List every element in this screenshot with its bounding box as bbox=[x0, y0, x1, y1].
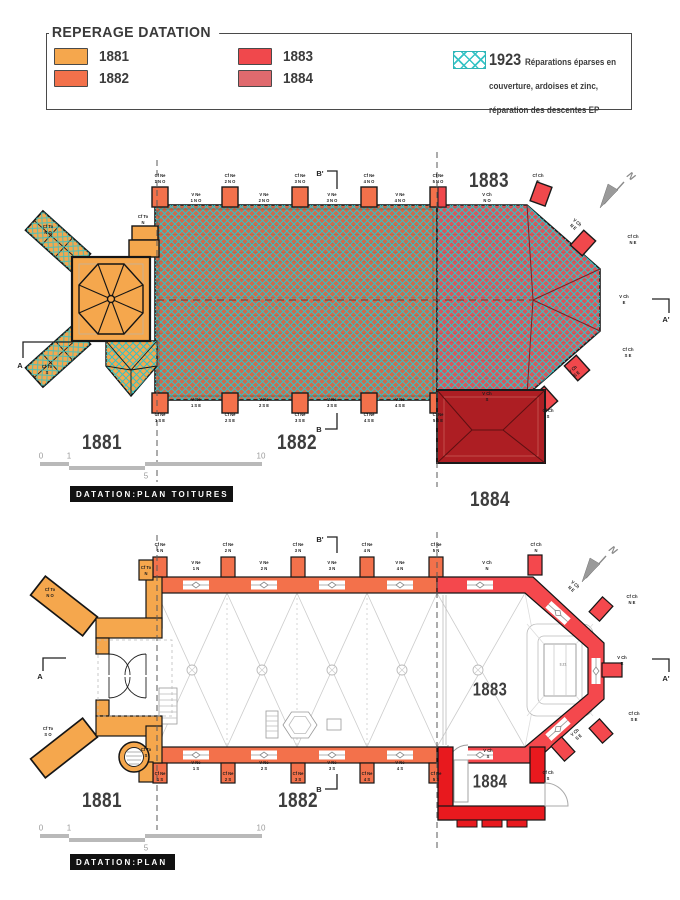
floor-zone-1881: 1881 bbox=[82, 789, 122, 813]
floor-plan-title: DATATION:PLAN bbox=[76, 858, 167, 867]
north-arrow-floor: N bbox=[582, 544, 619, 582]
roof-porch-2 bbox=[129, 240, 159, 257]
roof-chimney-split-top bbox=[438, 187, 446, 207]
section-a: A bbox=[37, 672, 43, 681]
floor-sacristy-door bbox=[545, 783, 568, 806]
scale-1: 1 bbox=[67, 452, 71, 461]
floor-plan: N A A' B' B bbox=[31, 532, 670, 850]
section-b-prime: B' bbox=[316, 535, 323, 544]
scale-10: 10 bbox=[257, 452, 266, 461]
roof-tower-1881 bbox=[26, 211, 159, 396]
scale-bar-roof bbox=[40, 462, 262, 470]
floor-tower-walls-1881 bbox=[31, 560, 162, 782]
roof-sacristy-1884 bbox=[437, 390, 545, 463]
section-b: B bbox=[316, 425, 322, 434]
north-label: N bbox=[606, 544, 619, 558]
section-a-prime: A' bbox=[662, 315, 669, 324]
floor-sacristy-cupboard bbox=[454, 760, 468, 802]
scale-5: 5 bbox=[144, 844, 148, 853]
scale-5: 5 bbox=[144, 472, 148, 481]
floor-zone-1883: 1883 bbox=[473, 680, 507, 701]
roof-zone-1881: 1881 bbox=[82, 431, 122, 455]
floor-zone-1884: 1884 bbox=[473, 772, 507, 793]
scale-1: 1 bbox=[67, 824, 71, 833]
roof-plan-title: DATATION:PLAN TOITURES bbox=[76, 490, 229, 499]
roof-nave-1882 bbox=[155, 205, 437, 400]
north-label: N bbox=[624, 170, 637, 184]
floor-zone-1882: 1882 bbox=[278, 789, 318, 813]
datation-sheet: REPERAGE DATATION 1881 1882 1883 1884 19… bbox=[0, 0, 680, 900]
floor-plan-title-box: DATATION:PLAN bbox=[70, 854, 175, 870]
roof-zone-1884: 1884 bbox=[470, 488, 510, 512]
roof-plan-title-box: DATATION:PLAN TOITURES bbox=[70, 486, 233, 502]
north-arrow-roof: N bbox=[600, 170, 637, 208]
scale-bar-floor bbox=[40, 834, 262, 842]
floor-door-arcs bbox=[109, 654, 146, 698]
floor-vault-lines bbox=[157, 593, 588, 747]
roof-porch bbox=[132, 226, 158, 240]
section-a: A bbox=[17, 361, 23, 370]
roof-zone-1882: 1882 bbox=[277, 431, 317, 455]
section-a-prime: A' bbox=[662, 674, 669, 683]
roof-zone-1883: 1883 bbox=[469, 169, 509, 193]
scale-10: 10 bbox=[257, 824, 266, 833]
floor-furniture bbox=[159, 624, 593, 738]
scale-0: 0 bbox=[39, 452, 43, 461]
scale-0: 0 bbox=[39, 824, 43, 833]
section-b-prime: B' bbox=[316, 169, 323, 178]
